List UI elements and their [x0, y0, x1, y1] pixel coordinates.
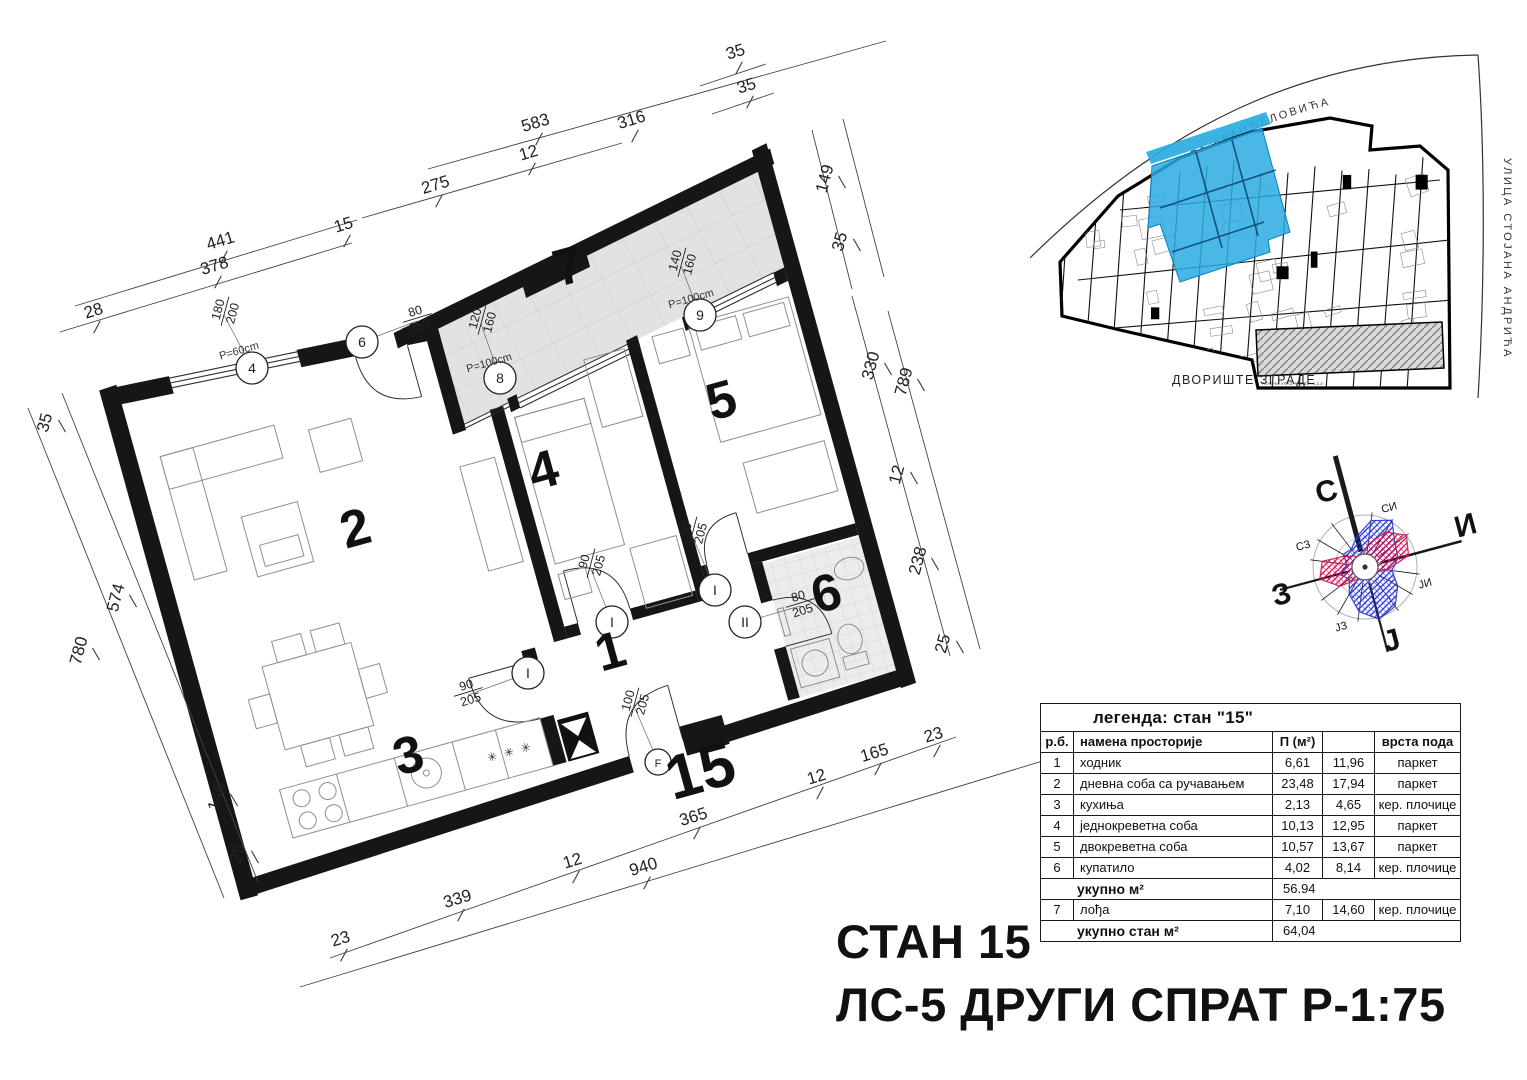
dimension-tick: [212, 276, 224, 288]
legend-cell-area: 7,10: [1273, 900, 1323, 920]
site-furniture: [1093, 147, 1112, 159]
dimension-label: 149: [812, 162, 838, 194]
site-shaft: [1151, 307, 1159, 319]
dimension-label: 339: [441, 886, 474, 912]
site-shaft: [1311, 252, 1318, 268]
dimension-tick: [341, 235, 353, 247]
dimension-label: 275: [419, 172, 452, 198]
dimension-tick: [851, 239, 863, 251]
room-number: 4: [522, 439, 565, 503]
legend-cell-area: 2,13: [1273, 795, 1323, 815]
site-furniture: [1135, 363, 1156, 383]
legend-total-label: укупно стан м²: [1041, 921, 1273, 941]
dimension-chains: [28, 41, 1082, 987]
compass-direction-label: С: [1312, 473, 1341, 510]
legend-cell-name: ходник: [1074, 753, 1273, 773]
dimension-tick: [954, 641, 966, 653]
compass-direction-label: Ј: [1379, 623, 1404, 659]
legend-header-name: намена просторије: [1074, 732, 1273, 752]
dimension-tick: [127, 595, 139, 607]
legend-cell-area: 23,48: [1273, 774, 1323, 794]
legend-cell-floor: кер. плочице: [1375, 795, 1460, 815]
legend-row: 4једнокреветна соба10,1312,95паркет: [1041, 816, 1460, 837]
room-number: 2: [334, 497, 377, 561]
dimension-tick: [249, 851, 261, 863]
site-shaft: [1416, 175, 1428, 190]
legend-cell-name: једнокреветна соба: [1074, 816, 1273, 836]
room-number: 15: [658, 729, 743, 814]
dimension-label: 574: [103, 581, 129, 613]
room-number: 3: [387, 724, 430, 788]
legend-cell-no: 1: [1041, 753, 1074, 773]
opening-mark: 4: [248, 360, 256, 376]
dimension-label: 35: [828, 230, 851, 253]
legend-cell-val: 12,95: [1323, 816, 1375, 836]
compass-direction-label: СЗ: [1295, 538, 1312, 553]
dimension-tick: [929, 558, 941, 570]
legend-header-floor: врста пода: [1375, 732, 1460, 752]
site-plan-overview: УЛИЦА ПЕТРА АРАНЂЕЛОВИЋА УЛИЦА СТОЈАНА А…: [1030, 55, 1513, 398]
dimension-label: 35: [724, 40, 748, 64]
legend-cell-area: 6,61: [1273, 753, 1323, 773]
sheet-title-apartment: СТАН 15: [836, 914, 1031, 969]
dimension-label: 25: [931, 632, 954, 655]
site-furniture: [1116, 354, 1140, 375]
legend-cell-no: 2: [1041, 774, 1074, 794]
legend-cell-area: 4,02: [1273, 858, 1323, 878]
kitchen-appliance-marks: ✳ ✳ ✳: [485, 739, 534, 765]
compass-direction-label: З: [1268, 576, 1295, 613]
legend-cell-area: 10,13: [1273, 816, 1323, 836]
dimension-tick: [931, 745, 943, 757]
dimension-tick: [915, 379, 927, 391]
compass-direction-label: СИ: [1380, 500, 1398, 516]
legend-cell-floor: паркет: [1375, 816, 1460, 836]
dimension-label: 789: [891, 365, 917, 397]
legend-header-col4: [1323, 732, 1375, 752]
dimension-tick: [908, 472, 920, 484]
legend-cell-floor: паркет: [1375, 753, 1460, 773]
site-shaft: [1277, 266, 1289, 279]
dimension-tick: [744, 96, 756, 108]
legend-cell-val: 8,14: [1323, 858, 1375, 878]
legend-subtotal-value: 56.94: [1273, 879, 1460, 899]
dimension-label: 15: [332, 213, 356, 237]
legend-row: 1ходник6,6111,96паркет: [1041, 753, 1460, 774]
dimension-tick: [733, 62, 745, 74]
legend-cell-name: двокреветна соба: [1074, 837, 1273, 857]
legend-cell-val: 4,65: [1323, 795, 1375, 815]
street-name-right: УЛИЦА СТОЈАНА АНДРИЋА: [1501, 158, 1513, 359]
legend-cell-val: 11,96: [1323, 753, 1375, 773]
legend-cell-val: 13,67: [1323, 837, 1375, 857]
dimension-label: 23: [329, 927, 353, 951]
opening-size-label: 180200: [208, 293, 244, 329]
sheet-title-floor-scale: ЛС-5 ДРУГИ СПРАТ Р-1:75: [836, 977, 1446, 1032]
dimension-label: 330: [858, 349, 884, 381]
opening-mark: II: [741, 614, 749, 630]
opening-mark: 8: [496, 370, 504, 386]
legend-cell-no: 3: [1041, 795, 1074, 815]
legend-table: легенда: стан "15" р.б. намена просториј…: [1040, 703, 1461, 942]
dimension-tick: [91, 321, 103, 333]
dimension-label: 780: [66, 634, 92, 666]
legend-cell-no: 6: [1041, 858, 1074, 878]
dimension-tick: [836, 176, 848, 188]
legend-cell-no: 5: [1041, 837, 1074, 857]
legend-cell-floor: кер. плочице: [1375, 900, 1460, 920]
site-shaft: [1343, 175, 1351, 189]
legend-total: укупно стан м²64,04: [1041, 921, 1460, 941]
legend-cell-val: 17,94: [1323, 774, 1375, 794]
compass-direction-label: И: [1451, 507, 1480, 544]
compass-direction-label: ЈИ: [1417, 577, 1433, 592]
opening-mark: I: [713, 582, 717, 598]
dimension-tick: [814, 787, 826, 799]
opening-mark: 9: [696, 307, 704, 323]
dimension-tick: [882, 363, 894, 375]
dimension-label: 12: [805, 765, 829, 789]
dimension-label: 23: [922, 723, 946, 747]
legend-cell-name: дневна соба са ручавањем: [1074, 774, 1273, 794]
blueprint-page: 2844137815275125833163535149353307891223…: [0, 0, 1527, 1080]
legend-cell-name: лођа: [1074, 900, 1273, 920]
dimension-tick: [56, 420, 68, 432]
legend-row: 2дневна соба са ручавањем23,4817,94парке…: [1041, 774, 1460, 795]
opening-size-label: 100205: [618, 684, 654, 720]
dimension-label: 35: [33, 411, 56, 434]
legend-cell-area: 10,57: [1273, 837, 1323, 857]
legend-cell-no: 4: [1041, 816, 1074, 836]
room-number: 5: [700, 369, 743, 433]
opening-mark: I: [526, 665, 530, 681]
legend-subtotal-label: укупно м²: [1041, 879, 1273, 899]
legend-header-area: П (м²): [1273, 732, 1323, 752]
dimension-label: 316: [615, 107, 648, 133]
opening-mark: 6: [358, 334, 366, 350]
legend-cell-floor: кер. плочице: [1375, 858, 1460, 878]
legend-row: 7лођа7,1014,60кер. плочице: [1041, 900, 1460, 921]
legend-title: легенда: стан "15": [1041, 704, 1460, 732]
dimension-label: 940: [627, 854, 660, 880]
dimension-label: 583: [519, 110, 552, 136]
legend-cell-name: кухиња: [1074, 795, 1273, 815]
legend-cell-name: купатило: [1074, 858, 1273, 878]
legend-cell-floor: паркет: [1375, 774, 1460, 794]
legend-row: 6купатило4,028,14кер. плочице: [1041, 858, 1460, 879]
legend-header-no: р.б.: [1041, 732, 1074, 752]
site-boundary-right: [1478, 55, 1483, 398]
dimension-tick: [526, 163, 538, 175]
dimension-tick: [629, 130, 641, 142]
legend-subtotal: укупно м²56.94: [1041, 879, 1460, 900]
dimension-label: 378: [198, 253, 231, 279]
courtyard-label: ДВОРИШТЕ ЗГРАДЕ: [1172, 373, 1316, 387]
legend-row: 5двокреветна соба10,5713,67паркет: [1041, 837, 1460, 858]
legend-cell-floor: паркет: [1375, 837, 1460, 857]
apartment-floor-plan: 2844137815275125833163535149353307891223…: [28, 40, 1082, 987]
dimension-label: 441: [204, 228, 237, 254]
compass-direction-label: ЈЗ: [1334, 620, 1349, 635]
dimension-tick: [90, 648, 102, 660]
legend-cell-no: 7: [1041, 900, 1074, 920]
legend-header-row: р.б. намена просторије П (м²) врста пода: [1041, 732, 1460, 753]
dimension-label: 12: [885, 463, 908, 486]
legend-cell-val: 14,60: [1323, 900, 1375, 920]
wind-rose-compass: СИЗЈСИЈИЈЗСЗ: [1268, 456, 1480, 659]
legend-total-value: 64,04: [1273, 921, 1460, 941]
legend-row: 3кухиња2,134,65кер. плочице: [1041, 795, 1460, 816]
